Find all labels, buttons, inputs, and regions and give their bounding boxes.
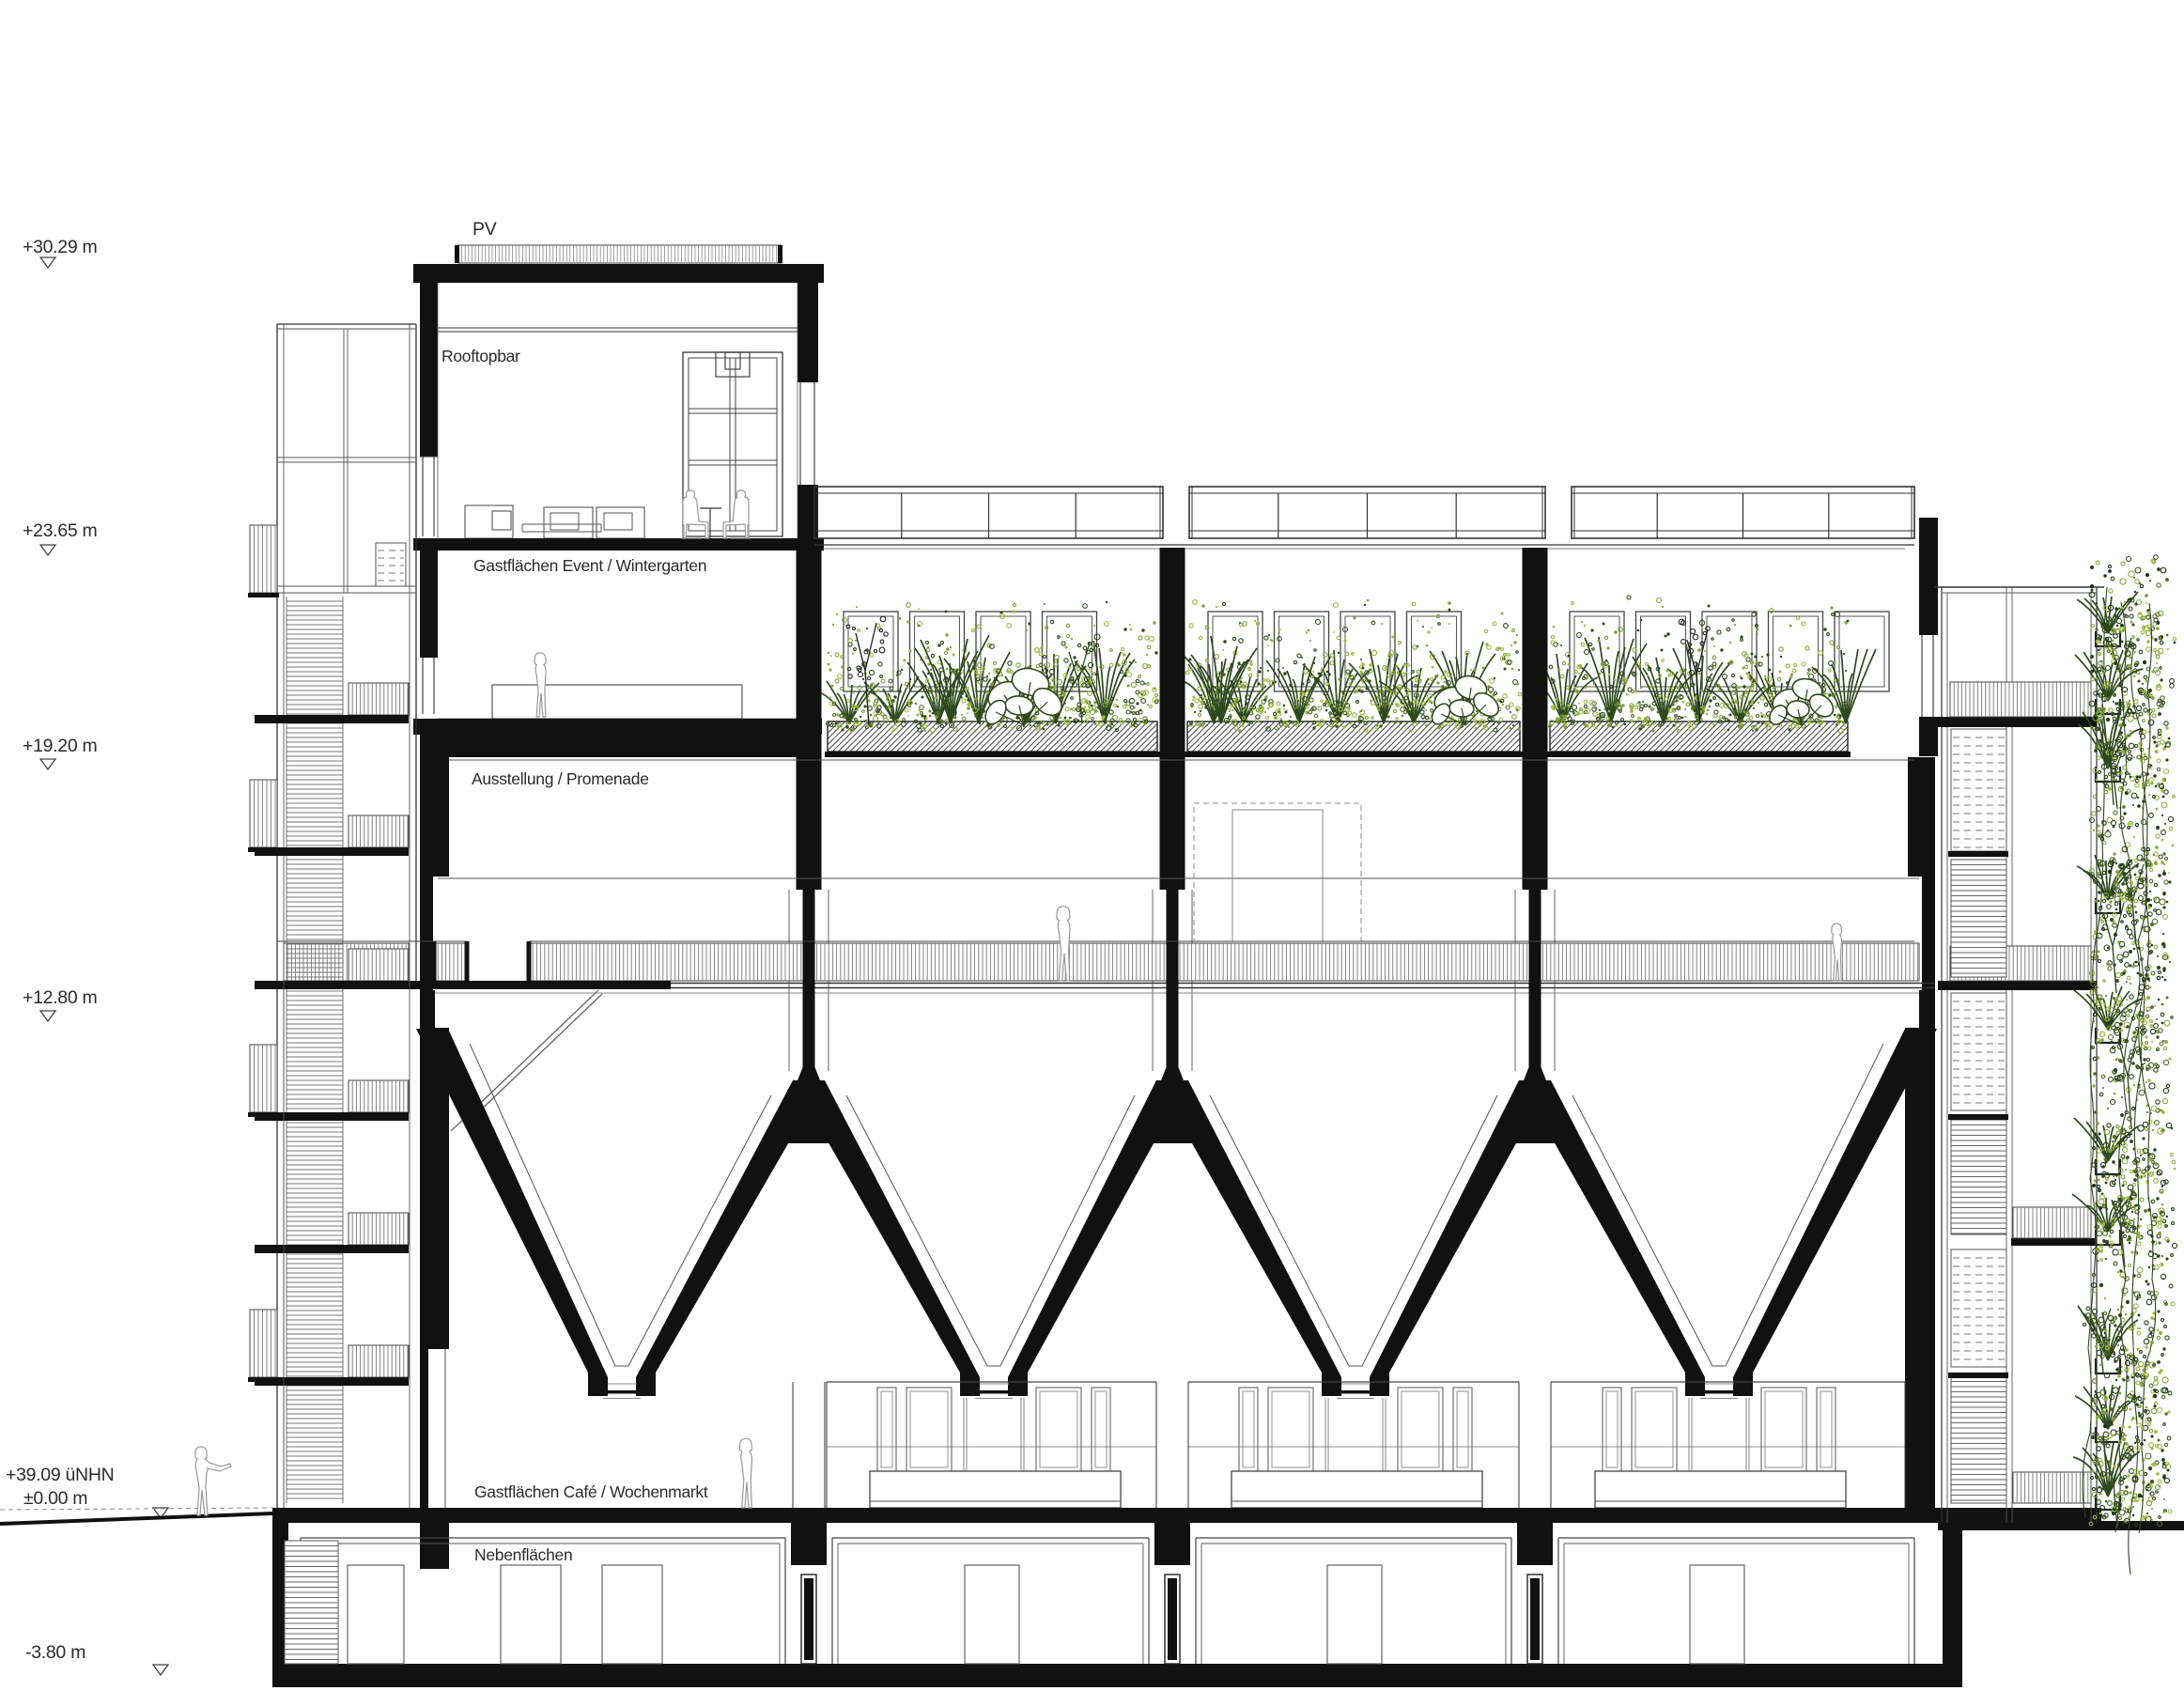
svg-text:Gastflächen Café / Wochenmarkt: Gastflächen Café / Wochenmarkt (474, 1482, 708, 1501)
svg-text:Gastflächen Event / Wintergart: Gastflächen Event / Wintergarten (473, 556, 706, 575)
svg-text:+23.65 m: +23.65 m (23, 520, 97, 541)
svg-text:+30.29 m: +30.29 m (23, 237, 97, 257)
svg-text:+12.80 m: +12.80 m (23, 987, 97, 1008)
svg-text:Ausstellung / Promenade: Ausstellung / Promenade (472, 769, 649, 788)
svg-text:PV: PV (472, 219, 497, 240)
svg-text:Rooftopbar: Rooftopbar (441, 347, 520, 365)
svg-text:-3.80 m: -3.80 m (25, 1642, 85, 1663)
svg-text:±0.00 m: ±0.00 m (23, 1488, 87, 1509)
svg-text:Nebenflächen: Nebenflächen (474, 1545, 572, 1564)
svg-text:+39.09 üNHN: +39.09 üNHN (6, 1465, 114, 1485)
svg-text:+19.20 m: +19.20 m (23, 736, 97, 756)
